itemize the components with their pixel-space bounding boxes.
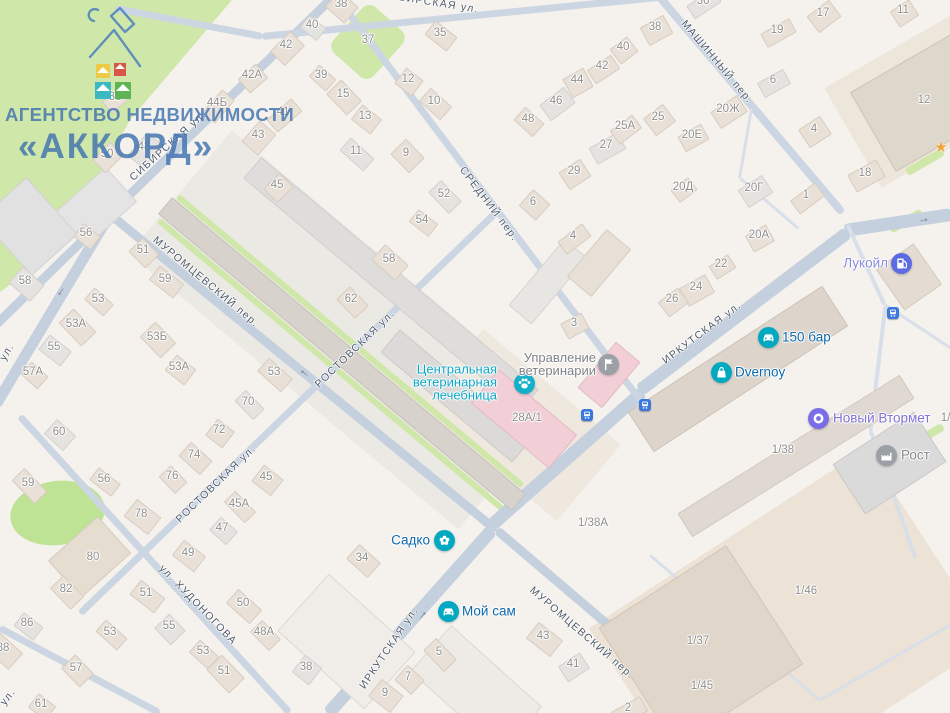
house-number: 3 [571,317,577,329]
house-number: 49 [182,547,195,559]
house-number: 58 [383,253,396,265]
house-number: 44Б [207,97,227,109]
poi-label-rost[interactable]: Рост [901,448,930,462]
house-number: 47 [216,522,229,534]
house-number: 51 [137,244,150,256]
house-number: 39 [315,69,328,81]
house-number: 78 [135,508,148,520]
vet-administration-icon[interactable] [598,354,619,375]
house-number: 46 [550,95,563,107]
house-number: 12 [918,94,931,106]
house-number: 25А [615,120,635,132]
poi-label-moy-sam[interactable]: Мой сам [462,604,516,618]
house-number: 45 [260,471,273,483]
house-number: 22 [715,258,728,270]
street-label: ул. [0,341,17,363]
poi-label-sadko[interactable]: Садко [391,533,430,547]
house-number: 80 [87,551,100,563]
house-number: 9 [382,687,388,699]
house-number: 15 [337,88,350,100]
house-number: 17 [817,7,830,19]
house-number: 38 [335,0,348,10]
house-number: 19 [771,24,784,36]
house-number: 40 [617,41,630,53]
house-number: 61 [35,698,48,710]
house-number: 10 [428,95,441,107]
house-number: 13 [359,110,372,122]
house-number: 53 [104,626,117,638]
street-label: ул. [0,686,18,708]
house-number: 27 [600,139,613,151]
favorite-star-icon[interactable]: ★ [934,138,947,156]
sadko-icon[interactable] [434,530,455,551]
house-number: 9 [403,147,409,159]
house-number: 28А/1 [512,412,542,424]
house-number: 48 [522,113,535,125]
poi-label-novy-vtormet[interactable]: Новый Втормет [833,411,931,425]
poi-label-bar-150[interactable]: 150 бар [782,330,831,344]
house-number: 1/38А [578,517,608,529]
house-number: 40 [306,19,319,31]
house-number: 7 [405,671,411,683]
house-number: 11 [350,145,362,157]
map-screenshot: 404242А44Б383735391513119121036485041434… [0,0,950,713]
house-number: 20А [749,229,769,241]
building [876,243,942,310]
house-number: 60 [53,426,66,438]
house-number: 51 [140,587,153,599]
house-number: 48 [138,141,151,153]
house-number: 45 [271,179,284,191]
house-number: 26 [666,293,679,305]
house-number: 43 [252,129,265,141]
poi-label-dvernoy[interactable]: Dvernoy [735,365,785,379]
house-number: 41 [277,106,290,118]
house-number: 1/38 [772,444,794,456]
house-number: 42А [242,69,262,81]
house-number: 74 [188,449,201,461]
map-canvas[interactable]: 404242А44Б383735391513119121036485041434… [0,0,950,713]
house-number: 12 [402,73,415,85]
house-number: 57 [70,662,83,674]
house-number: 4 [811,123,817,135]
poi-label-lukoil[interactable]: Лукойл [843,256,888,270]
house-number: 29 [568,165,581,177]
house-number: 20Д [673,181,694,193]
bar-150-icon[interactable] [758,327,779,348]
house-number: 41 [567,658,580,670]
house-number: 1/38 [941,412,950,424]
poi-label-vet-administration[interactable]: Управление ветеринарии [519,351,596,377]
house-number: 55 [48,341,61,353]
house-number: 76 [166,470,179,482]
house-number: 56 [98,473,111,485]
street-label: СРЕДНИЙ пер. [457,164,521,243]
house-number: 4 [570,230,576,242]
house-number: 45А [229,498,249,510]
house-number: 86 [21,617,34,629]
house-number: 1/37 [687,635,709,647]
house-number: 70 [242,396,255,408]
house-number: 51 [218,665,231,677]
house-number: 53 [197,645,210,657]
house-number: 82 [60,583,73,595]
street-label: МАШИННЫЙ пер. [679,18,756,106]
house-number: 11 [897,4,909,16]
dvernoy-icon[interactable] [711,362,732,383]
house-number: 62 [345,293,358,305]
house-number: 54 [416,214,429,226]
house-number: 53 [268,366,281,378]
house-number: 59 [159,273,172,285]
house-number: 52 [438,188,451,200]
road[interactable] [739,108,754,179]
house-number: 42 [596,60,609,72]
house-number: 6 [770,74,776,86]
house-number: 42 [280,39,293,51]
transit-stop-icon[interactable] [581,409,593,421]
house-number: 53 [92,293,105,305]
house-number: 1 [803,189,809,201]
road[interactable] [844,208,950,237]
house-number: 1/46 [795,585,817,597]
house-number: 37 [362,34,375,46]
house-number: 5 [436,646,442,658]
building [410,625,542,713]
house-number: 35 [434,27,447,39]
moy-sam-icon[interactable] [438,601,459,622]
house-number: 55 [163,620,176,632]
house-number: 43 [537,630,550,642]
house-number: 2 [625,702,631,713]
street-label: СИБИРСКАЯ ул. [380,0,479,16]
house-number: 36 [697,0,710,7]
lukoil-icon[interactable] [891,253,912,274]
one-way-arrow-icon: → [915,209,931,226]
house-number: 20Ж [716,103,739,115]
house-number: 48А [254,626,274,638]
house-number: 56 [80,227,93,239]
house-number: 24 [690,281,703,293]
transit-stop-icon[interactable] [887,307,899,319]
house-number: 50 [237,597,250,609]
house-number: 72 [213,424,226,436]
house-number: 1/45 [691,680,713,692]
house-number: 53А [169,361,189,373]
novy-vtormet-icon[interactable] [808,408,829,429]
house-number: 18 [859,167,872,179]
house-number: 6 [530,196,536,208]
house-number: 25 [652,111,665,123]
house-number: 59 [22,477,35,489]
house-number: 57А [23,366,43,378]
house-number: 88 [0,642,9,654]
rost-icon[interactable] [876,445,897,466]
poi-label-vet-clinic[interactable]: Центральная ветеринарная лечебница [413,363,497,402]
house-number: 38 [300,661,313,673]
house-number: 36 [109,91,122,103]
house-number: 53А [66,318,86,330]
house-number: 20Е [682,129,702,141]
house-number: 20Г [744,182,763,194]
house-number: 38 [649,21,662,33]
house-number: 53Б [147,331,167,343]
transit-stop-icon[interactable] [639,399,651,411]
house-number: 44 [571,74,584,86]
house-number: 58 [19,275,32,287]
house-number: 34 [356,552,369,564]
house-number: 50 [101,148,114,160]
